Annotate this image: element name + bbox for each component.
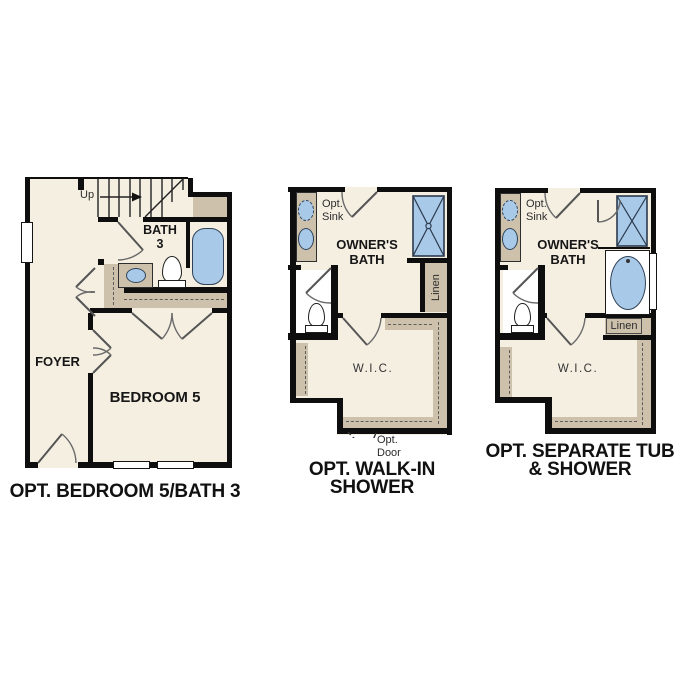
wic-shelf [433, 318, 447, 428]
bath3-label-line1: BATH [138, 223, 182, 237]
opt-door-label-line2: Door [377, 447, 401, 460]
window [649, 253, 657, 310]
toilet-icon [514, 303, 531, 327]
wall-segment [540, 313, 547, 318]
toilet-tank-icon [158, 280, 186, 288]
hall-floor [193, 197, 227, 217]
foyer-label: FOYER [30, 355, 85, 370]
closet-rod-line [124, 299, 224, 300]
wall-segment [227, 192, 232, 468]
wall-segment [212, 308, 232, 313]
wall-segment [545, 428, 656, 434]
wall-segment [186, 222, 190, 268]
wic-shelf [500, 347, 512, 397]
bathtub-icon [192, 228, 224, 285]
plan-separate-tub-shower: Linen Opt. Sink OWNER'S BATH W.I.C. [490, 176, 658, 436]
owners-bath-label-line2: BATH [518, 253, 618, 268]
toilet-icon [162, 256, 182, 283]
toilet-tank-icon [305, 325, 328, 333]
optional-sink-icon [298, 200, 314, 221]
window [21, 222, 33, 263]
wall-segment [495, 397, 552, 403]
wall-segment [495, 333, 545, 340]
sink-icon [298, 228, 314, 250]
opt-door-label-line1: Opt. [377, 434, 398, 447]
bedroom5-label: BEDROOM 5 [75, 389, 235, 406]
bath3-label-line2: 3 [138, 237, 182, 251]
wall-segment [651, 188, 656, 434]
wic-rod-line [509, 350, 510, 394]
window [157, 461, 194, 469]
owners-bath-label-line2: BATH [317, 253, 417, 268]
wall-segment [90, 308, 132, 313]
toilet-tank-icon [511, 325, 534, 333]
opt-sink-label-line2: Sink [526, 211, 547, 224]
sink-icon [126, 268, 146, 283]
exterior-cut [193, 176, 232, 192]
wall-segment [331, 270, 338, 338]
optional-sink-icon [502, 200, 518, 221]
wall-segment [290, 398, 343, 403]
wall-segment [88, 373, 93, 463]
closet-rod-line [113, 267, 114, 305]
wic-label: W.I.C. [333, 363, 413, 375]
toilet-icon [308, 303, 325, 327]
wall-segment [335, 313, 343, 318]
wall-segment [538, 270, 545, 338]
wall-segment [25, 462, 38, 468]
wic-shelf [343, 417, 433, 428]
linen-label: Linen [606, 318, 642, 334]
owners-bath-label-line1: OWNER'S [317, 238, 417, 253]
wic-shelf [637, 340, 651, 428]
wall-segment [288, 333, 338, 340]
wall-segment [447, 187, 452, 435]
plan-bedroom5-bath3: Up BATH 3 FOYER BEDROOM 5 [20, 176, 235, 476]
wic-rod-line [305, 346, 306, 394]
tub-faucet-icon [626, 259, 630, 263]
wall-segment [98, 217, 118, 222]
wic-rod-line [555, 421, 637, 422]
opt-sink-label-line1: Opt. [526, 198, 547, 211]
plan-walkin-shower: Linen Opt. Sink OWNER'S BATH [280, 176, 455, 438]
wall-segment [580, 188, 656, 193]
plan3-caption-line2: & SHOWER [482, 461, 678, 479]
wic-rod-line [438, 322, 439, 424]
opt-sink-label-line1: Opt. [322, 198, 343, 211]
exterior-cut [280, 403, 337, 438]
closet-shelf [120, 293, 227, 308]
linen-label: Linen [425, 263, 447, 312]
wic-rod-line [388, 324, 432, 325]
wall-segment [25, 177, 188, 179]
stairs-up-label: Up [80, 189, 94, 202]
sink-icon [502, 228, 518, 250]
wall-segment [78, 462, 232, 468]
wic-shelf [296, 343, 308, 396]
plan1-caption: OPT. BEDROOM 5/BATH 3 [0, 483, 250, 501]
wall-segment [88, 313, 93, 330]
wall-segment [377, 187, 452, 192]
wic-label: W.I.C. [538, 363, 618, 375]
wic-rod-line [642, 343, 643, 425]
plan2-caption-line2: SHOWER [288, 479, 456, 497]
window [113, 461, 150, 469]
wic-shelf [552, 417, 637, 428]
opt-sink-label-line2: Sink [322, 211, 343, 224]
floorplan-canvas: Up BATH 3 FOYER BEDROOM 5 OPT. BEDROOM 5… [0, 0, 687, 687]
owners-bath-label-line1: OWNER'S [518, 238, 618, 253]
exterior-cut [490, 403, 545, 436]
wic-rod-line [346, 421, 432, 422]
